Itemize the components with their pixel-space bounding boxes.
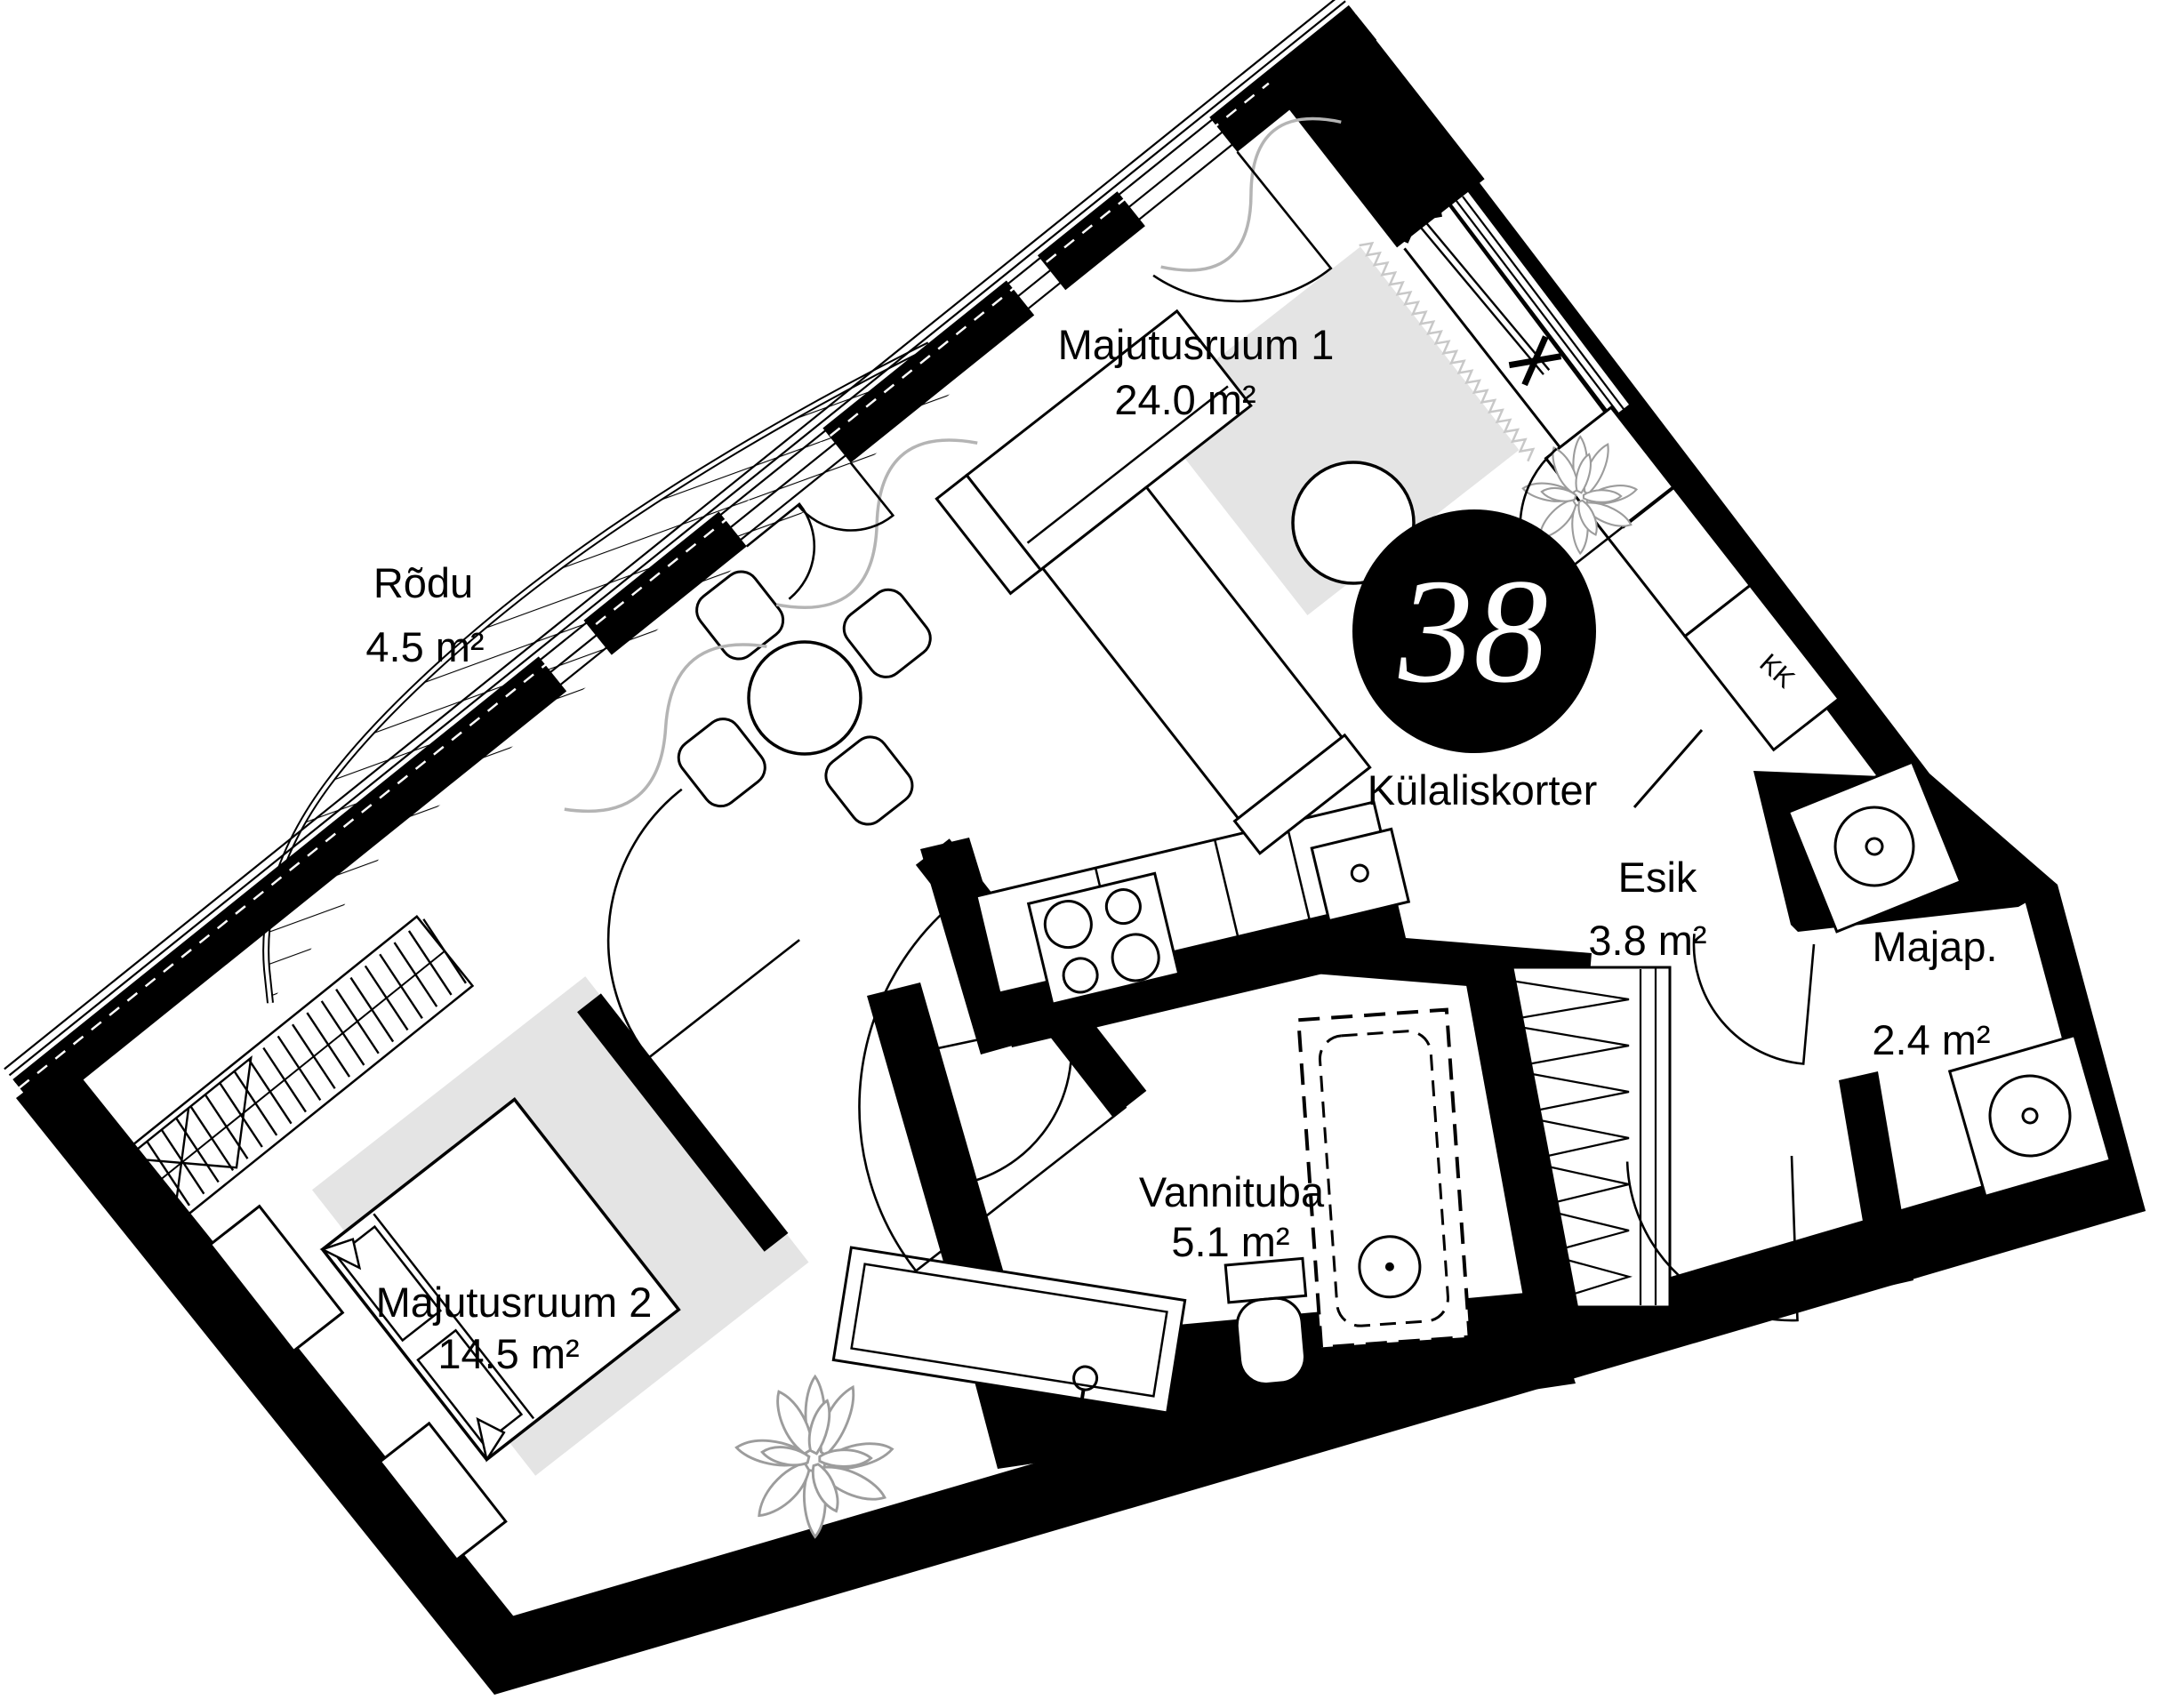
svg-text:Külaliskorter: Külaliskorter [1368,766,1598,814]
svg-text:Majutusruum 1: Majutusruum 1 [1058,321,1335,368]
svg-text:4.5 m²: 4.5 m² [365,623,484,670]
svg-text:Vannituba: Vannituba [1139,1168,1325,1215]
svg-text:Rõdu: Rõdu [373,559,473,606]
svg-text:Majutusruum 2: Majutusruum 2 [376,1279,653,1326]
svg-text:38: 38 [1398,549,1548,714]
svg-text:24.0 m²: 24.0 m² [1114,376,1255,423]
svg-text:14.5 m²: 14.5 m² [437,1330,579,1377]
svg-text:3.8 m²: 3.8 m² [1588,917,1706,964]
svg-text:5.1 m²: 5.1 m² [1171,1218,1289,1265]
svg-text:Majap.: Majap. [1872,923,1997,970]
svg-text:Esik: Esik [1618,854,1697,901]
svg-text:2.4 m²: 2.4 m² [1872,1016,1990,1063]
